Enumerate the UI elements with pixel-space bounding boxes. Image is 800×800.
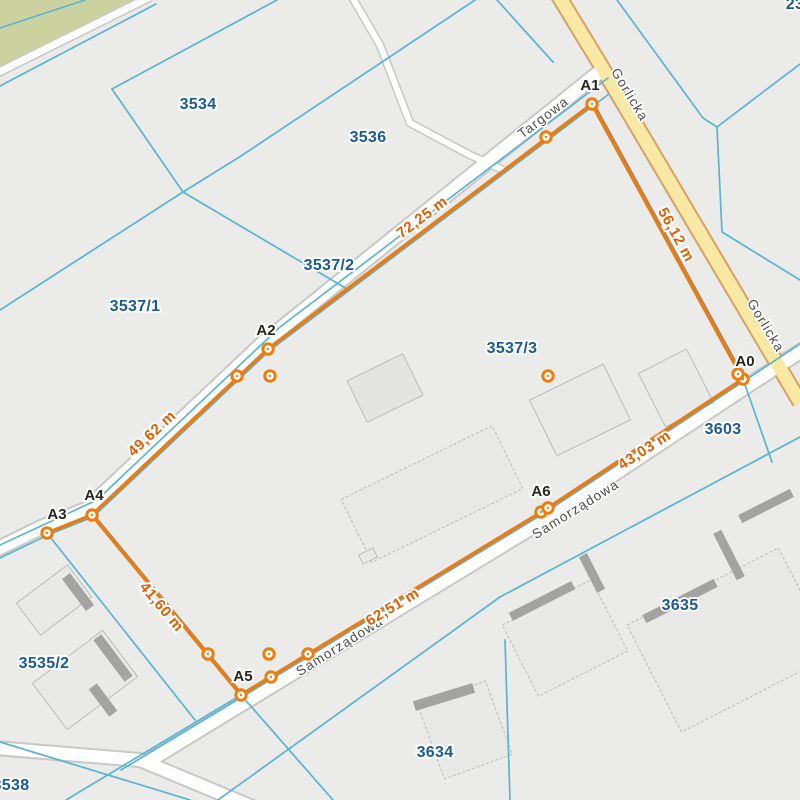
vertex-label: A6	[531, 483, 550, 500]
parcel-label: 23	[786, 0, 800, 13]
vertex-marker-center	[236, 375, 238, 377]
vertex-marker-center	[737, 373, 739, 375]
parcel-label: 3635	[662, 597, 699, 614]
parcel-label: 3538	[0, 777, 29, 794]
vertex-marker-center	[545, 136, 547, 138]
parcel-label: 3603	[705, 421, 742, 438]
vertex-marker-center	[91, 514, 93, 516]
parcel-label: 3537/3	[487, 340, 538, 357]
vertex-marker-center	[547, 507, 549, 509]
parcel-label: 3537/1	[110, 298, 161, 315]
vertex-marker-center	[240, 694, 242, 696]
vertex-marker-center	[267, 348, 269, 350]
parcel-label: 3537/2	[304, 257, 355, 274]
vertex-marker-center	[270, 676, 272, 678]
vertex-marker-center	[591, 103, 593, 105]
vertex-marker-center	[540, 511, 542, 513]
parcel-label: 3634	[417, 744, 454, 761]
map-canvas[interactable]: TargowaGorlickaGorlickaSamorządowaSamorz…	[0, 0, 800, 800]
cadastral-map[interactable]: TargowaGorlickaGorlickaSamorządowaSamorz…	[0, 0, 800, 800]
vertex-label: A4	[84, 487, 104, 504]
parcel-label: 3535/2	[19, 655, 70, 672]
vertex-label: A0	[735, 353, 754, 370]
vertex-label: A3	[47, 506, 66, 523]
vertex-marker-center	[46, 532, 48, 534]
vertex-marker-center	[207, 653, 209, 655]
vertex-label: A5	[233, 668, 252, 685]
vertex-marker-center	[547, 375, 549, 377]
vertex-label: A2	[256, 322, 275, 339]
vertex-marker-center	[307, 653, 309, 655]
parcel-label: 3534	[180, 96, 217, 113]
vertex-label: A1	[580, 77, 599, 94]
parcel-label: 3536	[350, 129, 387, 146]
vertex-marker-center	[269, 375, 271, 377]
vertex-marker-center	[268, 653, 270, 655]
